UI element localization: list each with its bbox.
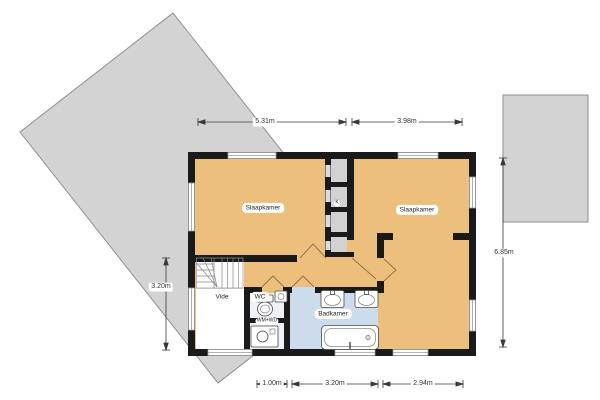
room-label-bedroom-left: Slaapkamer (243, 203, 284, 212)
window-right-upper (470, 177, 476, 208)
room-label-bathroom: Badkamer (315, 309, 351, 318)
window-right-lower (470, 300, 476, 331)
dim-label-top-1: 5.31m (253, 118, 276, 126)
wall-closet-right (347, 159, 354, 240)
room-label-wc: WC (252, 292, 269, 301)
room-label-vide: Vide (213, 292, 232, 301)
dim-label-right: 6.85m (492, 249, 515, 257)
room-label-closet: K (334, 200, 339, 206)
floorplan-canvas: Slaapkamer Slaapkamer Badkamer Vide WC W… (0, 0, 600, 400)
floor-bathroom-door-notch (292, 287, 315, 293)
window-top-right (398, 153, 438, 159)
room-label-bedroom-right: Slaapkamer (397, 205, 438, 214)
wall-closet-div3 (325, 232, 354, 237)
washing-machine-icon (251, 326, 278, 347)
dim-label-top-2: 3.98m (395, 118, 418, 126)
hand-sink-icon (275, 291, 287, 302)
window-left-bedroom (189, 183, 195, 231)
floorplan-drawing (0, 0, 600, 400)
floor-stairwell (196, 258, 244, 289)
dim-label-left: 3.20m (149, 283, 172, 291)
wall-hall-bedroomright-a (377, 240, 384, 258)
wall-closet-div2 (325, 207, 354, 212)
wall-closet-div4 (325, 252, 354, 257)
dim-label-bottom-3: 2.94m (411, 380, 434, 388)
wall-vide-right (244, 287, 250, 349)
roof-plane-right (503, 95, 588, 222)
window-top-left (228, 153, 276, 159)
window-bottom-bathroom (335, 350, 375, 356)
wall-bedroomright-stub-left (377, 233, 393, 240)
window-bottom-vide (208, 350, 252, 356)
dim-label-bottom-2: 3.20m (323, 380, 346, 388)
sink-icon-right (355, 291, 378, 308)
dim-label-bottom-1: 1.00m (260, 380, 283, 388)
sink-icon-left (321, 291, 344, 308)
wall-bedroomright-stub-right (453, 233, 469, 240)
room-label-laundry: WM+WD (256, 318, 278, 324)
window-bottom-bedroom (393, 350, 428, 356)
bathtub-icon (322, 326, 379, 350)
wall-closet-div1 (325, 182, 354, 187)
window-left-vide (189, 288, 195, 330)
